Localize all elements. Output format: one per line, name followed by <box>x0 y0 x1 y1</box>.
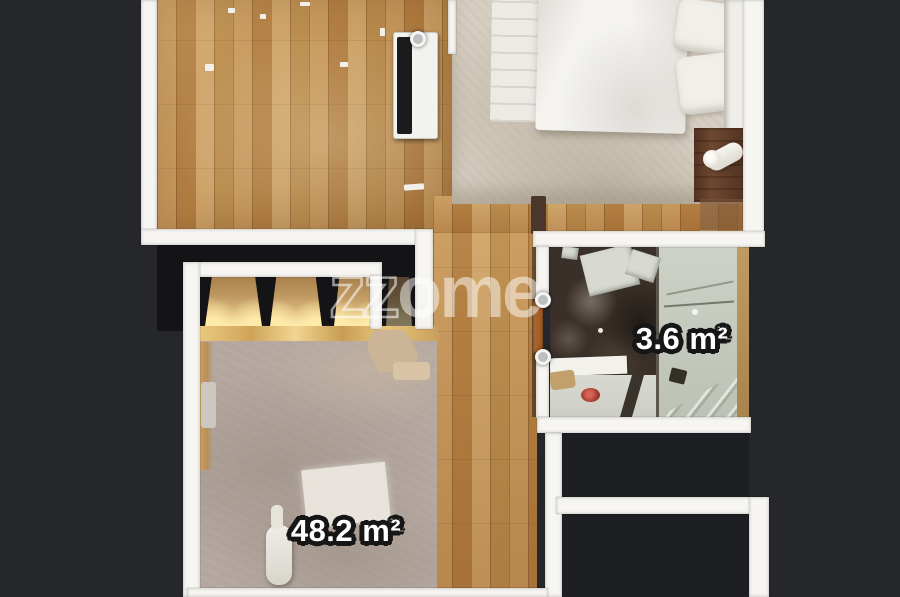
camera-marker-1[interactable] <box>410 31 426 47</box>
wood-stool <box>550 369 576 390</box>
floorplan-scan: 3.6 m² 48.2 m² zzome <box>0 0 900 597</box>
bathtub-top-view <box>550 375 656 417</box>
nightstand-shadow <box>700 199 746 230</box>
unscanned-room <box>562 433 749 597</box>
scan-speck <box>340 62 348 67</box>
floor-speck <box>598 328 603 333</box>
scan-speck <box>260 14 266 19</box>
wall-bathroom-top <box>533 231 765 247</box>
carpet-beige-patch-tip <box>393 362 430 380</box>
wall-toproom-bottom <box>141 229 433 245</box>
camera-marker-3[interactable] <box>535 349 551 365</box>
watermark-fill-part: ome <box>397 250 540 333</box>
watermark: zzome <box>329 255 540 329</box>
room-label-living: 48.2 m² <box>276 513 416 549</box>
camera-marker-2[interactable] <box>535 292 551 308</box>
scan-speck <box>300 2 310 6</box>
wall-sliver-bedroom <box>448 0 456 54</box>
table-lamp-base <box>703 150 721 168</box>
wall-bathroom-bottom <box>537 417 751 433</box>
scan-speck <box>380 28 385 36</box>
wall-living-left <box>183 262 200 597</box>
radiator-grille <box>397 37 412 134</box>
radiator <box>393 32 438 139</box>
wall-radiator <box>201 382 216 428</box>
shower-knob <box>692 309 698 315</box>
bathtub-shadow-line <box>620 375 644 417</box>
closet-bay-1 <box>205 277 262 327</box>
red-accessory <box>581 388 600 402</box>
wall-bottomroom-top <box>556 497 769 514</box>
bath-shelf <box>561 247 579 260</box>
closet-bay-2 <box>270 277 322 327</box>
bed-duvet <box>535 0 689 134</box>
scan-speck <box>228 8 235 13</box>
scan-speck <box>205 64 214 71</box>
room-label-bathroom: 3.6 m² <box>612 321 752 357</box>
wall-bottomroom-left <box>545 433 562 597</box>
bed-blanket <box>490 0 542 122</box>
wall-bedroom-right <box>743 0 764 247</box>
door-frame-shadow <box>531 196 546 234</box>
wall-bottom-cut-edge <box>187 588 548 597</box>
watermark-outline-part: zz <box>329 250 397 333</box>
wall-bottomroom-right <box>749 497 769 597</box>
wall-toproom-left <box>141 0 157 245</box>
